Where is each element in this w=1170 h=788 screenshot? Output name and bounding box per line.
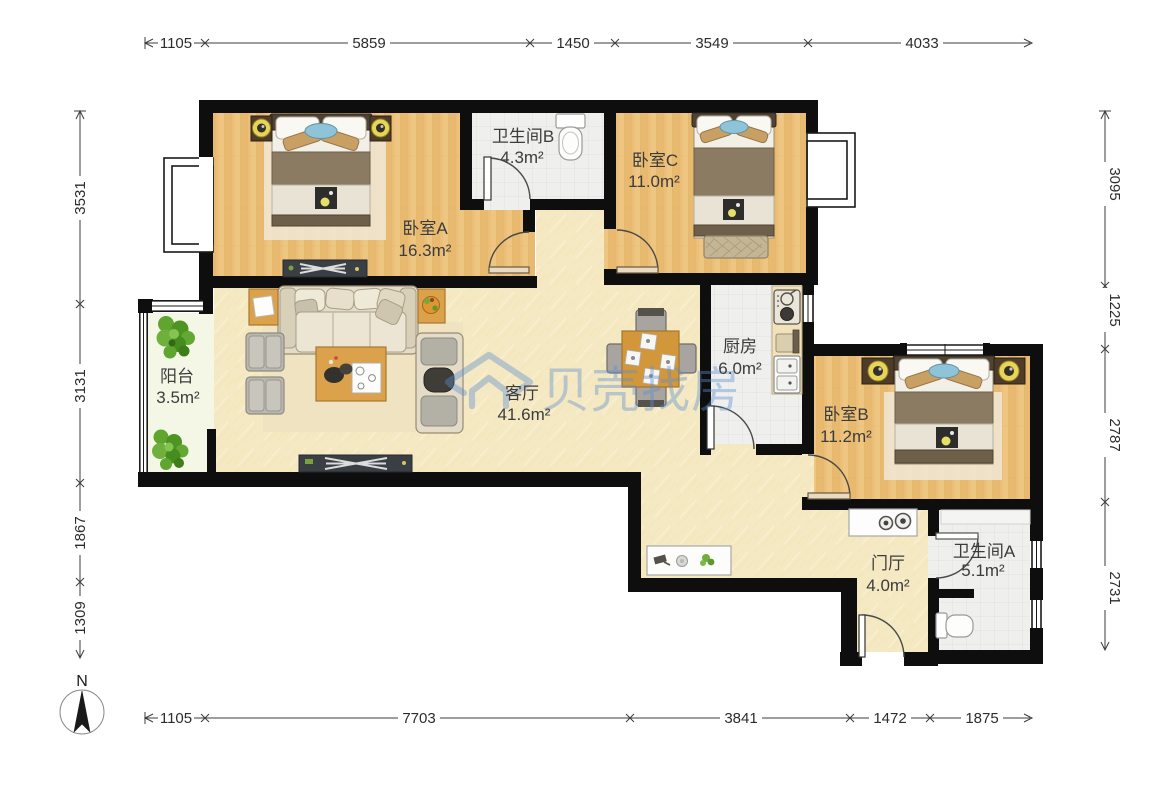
svg-text:2731: 2731: [1106, 571, 1123, 604]
svg-text:卧室C: 卧室C: [632, 151, 678, 170]
svg-text:1105: 1105: [160, 710, 192, 727]
svg-text:3.5m²: 3.5m²: [156, 388, 200, 407]
svg-text:卧室A: 卧室A: [402, 219, 448, 238]
svg-text:1450: 1450: [556, 35, 589, 52]
svg-text:3531: 3531: [72, 181, 89, 214]
svg-text:3095: 3095: [1106, 167, 1123, 200]
svg-text:贝壳找房: 贝壳找房: [541, 364, 741, 418]
svg-text:1472: 1472: [873, 710, 906, 727]
svg-text:门厅: 门厅: [871, 554, 905, 573]
svg-text:41.6m²: 41.6m²: [498, 405, 551, 424]
svg-text:3549: 3549: [695, 35, 728, 52]
svg-text:阳台: 阳台: [160, 367, 194, 386]
svg-text:3841: 3841: [724, 710, 757, 727]
svg-text:3131: 3131: [72, 369, 89, 402]
svg-text:卫生间B: 卫生间B: [492, 127, 554, 146]
svg-text:客厅: 客厅: [505, 384, 539, 403]
svg-text:1867: 1867: [72, 516, 89, 549]
svg-text:1309: 1309: [72, 601, 89, 634]
svg-text:6.0m²: 6.0m²: [718, 359, 762, 378]
svg-text:11.2m²: 11.2m²: [820, 427, 872, 446]
svg-text:4.3m²: 4.3m²: [500, 148, 544, 167]
svg-text:5859: 5859: [352, 35, 385, 52]
svg-text:卧室B: 卧室B: [823, 405, 868, 424]
svg-text:1105: 1105: [160, 35, 192, 52]
svg-text:厨房: 厨房: [723, 337, 757, 356]
svg-text:1225: 1225: [1106, 293, 1123, 326]
svg-text:卫生间A: 卫生间A: [953, 542, 1016, 561]
svg-text:2787: 2787: [1106, 418, 1123, 451]
svg-text:5.1m²: 5.1m²: [961, 561, 1005, 580]
svg-text:11.0m²: 11.0m²: [628, 172, 680, 191]
svg-text:4033: 4033: [905, 35, 938, 52]
svg-text:16.3m²: 16.3m²: [399, 241, 452, 260]
svg-text:N: N: [76, 673, 88, 690]
svg-text:1875: 1875: [965, 710, 998, 727]
svg-text:4.0m²: 4.0m²: [866, 576, 910, 595]
svg-text:7703: 7703: [402, 710, 435, 727]
